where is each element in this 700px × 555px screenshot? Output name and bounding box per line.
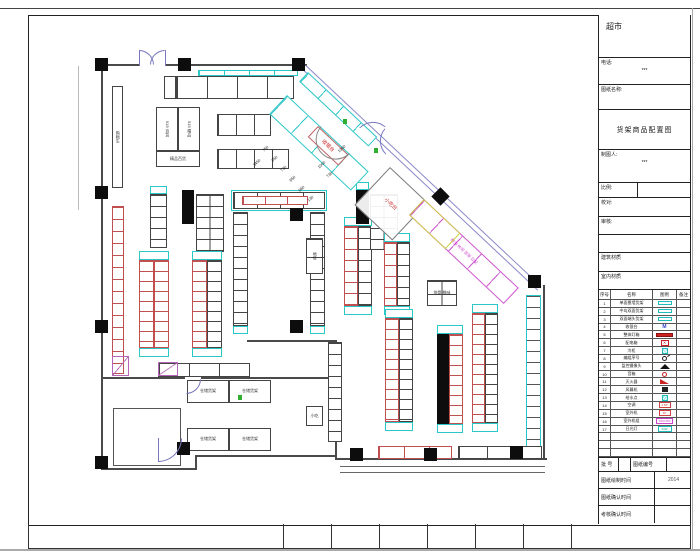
shelf-run	[344, 306, 372, 315]
legend-row-name: 冷柜	[611, 347, 653, 355]
structural-column	[350, 448, 363, 461]
draw-time-value: 2014	[655, 472, 690, 488]
shelf-run	[192, 251, 222, 260]
legend-row-no: 8	[599, 355, 611, 363]
draw-time-label: 图纸绘制时间	[599, 472, 655, 488]
shelf-label: 小吃	[307, 407, 322, 425]
blank-cell	[599, 235, 690, 253]
shelf-run: 精品百货	[156, 151, 200, 167]
legend-row-note	[677, 347, 690, 355]
sheet-bottom-edge	[0, 549, 700, 551]
interior-material-label: 室内材质	[601, 274, 621, 280]
legend-row-note	[677, 331, 690, 339]
structural-column	[528, 275, 541, 288]
legend-row-note	[677, 378, 690, 386]
draw-time-row: 图纸绘制时间 2014	[599, 472, 690, 489]
phone-label: 电话:	[601, 60, 612, 66]
legend-table: 序号名称图例备注1单面靠墙货架2中岛双面货架3双面端头货架4收银台M5整体灯箱6…	[599, 290, 690, 458]
hatch-triangle	[158, 362, 178, 376]
structural-column	[178, 58, 191, 71]
sheet-no-label: 图纸编号	[631, 458, 667, 471]
shelf-run: 915 百货	[156, 107, 178, 151]
shelf-run: 915 精品	[178, 107, 200, 151]
legend-row-symbol: ✕	[653, 339, 677, 347]
shelf-run	[233, 326, 248, 334]
legend-row-note	[677, 410, 690, 418]
structural-column	[290, 320, 303, 333]
wall-segment	[101, 468, 197, 470]
dimension-label: 1000	[316, 160, 326, 170]
magbox-icon: 700×450	[656, 418, 673, 424]
strip-divider	[427, 524, 428, 548]
shelf-run	[112, 206, 124, 374]
title-block: 超市 电话: *** 图纸名称: 货架商品配置图 制图人: *** 比例: 校对…	[598, 15, 690, 524]
legend-row-symbol: 40W	[653, 426, 677, 434]
review-cell: 审核:	[599, 217, 690, 235]
shelf-run	[198, 70, 298, 76]
shelf-run	[472, 304, 498, 313]
structural-column	[290, 208, 303, 221]
legend-row-symbol: 700×450	[653, 418, 677, 426]
revision-strip	[28, 524, 691, 549]
shelf-solid-bar	[437, 334, 449, 424]
door-arc	[150, 50, 165, 65]
legend-row-no: 6	[599, 339, 611, 347]
shelf-run	[458, 446, 542, 459]
batch-row: 批 号 图纸编号	[599, 458, 690, 472]
legend-row-name: 监控摄像头	[611, 363, 653, 371]
legend-row-name	[611, 433, 653, 441]
drafter-cell: 制图人: ***	[599, 150, 690, 183]
legend-row-symbol	[653, 316, 677, 324]
shelf-run: 排骨 腊味	[427, 280, 457, 306]
hatch-triangle	[112, 356, 129, 376]
legend-header: 备注	[677, 290, 690, 300]
check-cell: 校对:	[599, 198, 690, 217]
hatch-icon	[662, 395, 668, 401]
shelf-label: 仓储货架	[230, 381, 270, 402]
legend-row-note	[677, 363, 690, 371]
legend-row-symbol	[653, 331, 677, 339]
shelf-run	[526, 295, 541, 447]
wall-segment	[340, 472, 545, 473]
circle-icon	[662, 356, 667, 361]
shelf-run	[399, 318, 413, 422]
drafter-label: 制图人:	[601, 152, 617, 158]
legend-row-no: 5	[599, 331, 611, 339]
shelf-run: 仓储货架	[229, 428, 271, 451]
wall-segment	[247, 340, 337, 342]
drawing-sheet: 915 百货915 精品精品百货购物车排骨 腊味地堆小吃仓储货架仓储货架仓储货架…	[0, 0, 700, 555]
darksq-icon	[662, 387, 668, 392]
legend-row-no: 11	[599, 378, 611, 386]
phone-value: ***	[601, 68, 688, 74]
legend-row-name	[611, 449, 653, 457]
legend-row-note	[677, 308, 690, 316]
shelf-run: 仓储货架	[187, 428, 229, 451]
shelf-run	[139, 348, 169, 357]
legend-row-name: 日光灯	[611, 426, 653, 434]
legend-row-no: 1	[599, 300, 611, 308]
batch-value	[619, 458, 631, 471]
shelf-solid-bar	[182, 190, 194, 224]
legend-row-name: 中岛双面货架	[611, 308, 653, 316]
shelf-run	[385, 422, 413, 431]
floor-plan: 915 百货915 精品精品百货购物车排骨 腊味地堆小吃仓储货架仓储货架仓储货架…	[0, 0, 598, 524]
legend-row-no: 15	[599, 410, 611, 418]
shelf-run	[356, 182, 369, 190]
legend-row-name	[611, 441, 653, 449]
confirm-time-row: 图纸确认时间	[599, 489, 690, 506]
legend-row-symbol	[653, 347, 677, 355]
shelf-run	[139, 251, 169, 260]
legend-row-no	[599, 441, 611, 449]
shelf-run	[154, 260, 169, 348]
shelf-run	[472, 313, 485, 423]
redbar-icon	[656, 333, 673, 337]
wall-segment	[101, 377, 185, 379]
shelf-label: 地堆	[307, 239, 322, 273]
strip-divider	[475, 524, 476, 548]
drafter-value: ***	[601, 160, 688, 166]
structural-column	[95, 320, 108, 333]
drawing-name-label: 图纸名称:	[601, 87, 622, 93]
cyanbox-icon: 40W	[658, 426, 672, 432]
legend-row-no: 4	[599, 324, 611, 332]
shelf-run: 小吃	[306, 406, 323, 426]
legend-row-note	[677, 386, 690, 394]
shelf-run	[310, 326, 325, 334]
legend-row-no: 7	[599, 347, 611, 355]
redx-icon: ✕	[661, 340, 669, 346]
structural-column	[510, 446, 523, 459]
strip-divider	[379, 524, 380, 548]
strip-divider	[571, 524, 572, 548]
green-mark	[374, 148, 378, 153]
shelf-run	[385, 318, 399, 422]
legend-row-symbol	[653, 355, 677, 363]
ring-icon	[662, 372, 667, 377]
green-mark	[343, 119, 347, 124]
shelf-run	[384, 242, 397, 306]
drawing-name-cell: 货架商品配置图	[599, 110, 690, 150]
legend-row-no	[599, 449, 611, 457]
shelf-run	[449, 334, 463, 424]
legend-row-name: 风幕机	[611, 386, 653, 394]
legend-header: 序号	[599, 290, 611, 300]
dimension-label: 650	[288, 174, 296, 182]
legend-row-name: 室外机	[611, 410, 653, 418]
scale-divider	[637, 183, 638, 197]
cyanrect-icon	[658, 317, 672, 321]
legend-row-no: 16	[599, 418, 611, 426]
review-time-label: 考核确认时间	[599, 506, 655, 523]
cyanrect-icon	[658, 309, 672, 313]
legend-row-note	[677, 371, 690, 379]
wall-segment	[195, 455, 337, 457]
legend-row-name: 给水点	[611, 394, 653, 402]
shelf-label: 915 精品	[179, 108, 199, 150]
wall-segment	[195, 456, 197, 470]
phone-cell: 电话: ***	[599, 58, 690, 85]
legend-row-no: 3	[599, 316, 611, 324]
confirm-time-label: 图纸确认时间	[599, 489, 655, 505]
structural-column	[95, 58, 108, 71]
building-material-cell: 建筑材质	[599, 253, 690, 272]
wall-segment	[201, 377, 337, 379]
cyansq-icon	[662, 348, 668, 354]
sheet-right-edge	[692, 8, 693, 551]
shelf-run	[344, 226, 358, 306]
wall-segment	[78, 66, 79, 210]
legend-row-name: 配电箱	[611, 339, 653, 347]
scale-label: 比例:	[601, 185, 612, 191]
shelf-label: 仓储货架	[230, 429, 270, 450]
building-material-label: 建筑材质	[601, 255, 621, 261]
scale-cell: 比例:	[599, 183, 690, 198]
legend-row-name: 双面端头货架	[611, 316, 653, 324]
legend-row-symbol: M	[653, 324, 677, 332]
legend-row-no	[599, 433, 611, 441]
redbox-icon: 1.5P	[659, 402, 671, 408]
legend-row-symbol	[653, 363, 677, 371]
legend-row-name: 编组序号	[611, 355, 653, 363]
sheet-title-cell: 超市	[599, 15, 690, 58]
legend-row-name: 空调	[611, 402, 653, 410]
wedge-icon	[660, 379, 669, 384]
strip-divider	[523, 524, 524, 548]
legend-row-name: 整体灯箱	[611, 331, 653, 339]
shelf-run	[328, 342, 342, 442]
legend-row-note	[677, 449, 690, 457]
shelf-run	[472, 423, 498, 432]
legend-row-symbol	[653, 308, 677, 316]
review-label: 审核:	[601, 219, 612, 225]
legend-row-no: 17	[599, 426, 611, 434]
legend-row-no: 9	[599, 363, 611, 371]
interior-material-cell: 室内材质	[599, 272, 690, 290]
shelf-run: 地堆	[306, 238, 323, 274]
legend-row-symbol	[653, 441, 677, 449]
legend-row-no: 12	[599, 386, 611, 394]
legend-row-no: 2	[599, 308, 611, 316]
structural-column	[292, 58, 305, 71]
shelf-run	[207, 260, 222, 348]
confirm-time-value	[655, 489, 690, 505]
wall-segment	[101, 64, 103, 470]
shelf-run	[192, 348, 222, 357]
shelf-run	[150, 186, 167, 194]
shelf-run	[437, 424, 463, 433]
structural-column	[95, 456, 108, 469]
shelf-label: 排骨 腊味	[428, 281, 456, 305]
green-mark	[238, 395, 242, 400]
legend-row-symbol	[653, 378, 677, 386]
review-time-value	[655, 506, 690, 523]
legend-row-note	[677, 316, 690, 324]
structural-column	[95, 186, 108, 199]
dimension-label: 730	[325, 170, 333, 178]
legend-row-symbol	[653, 300, 677, 308]
legend-row-no: 13	[599, 394, 611, 402]
shelf-label: 精品百货	[157, 152, 199, 166]
sheet-no-value	[667, 458, 690, 471]
wall-segment	[165, 50, 166, 66]
shelf-run	[139, 260, 154, 348]
legend-row-symbol	[653, 371, 677, 379]
shelf-run	[233, 212, 248, 326]
wall-segment	[543, 285, 545, 460]
legend-row-note	[677, 426, 690, 434]
legend-row-note	[677, 355, 690, 363]
legend-row-note	[677, 394, 690, 402]
strip-divider	[283, 524, 284, 548]
redbox-icon: 2P	[659, 410, 671, 416]
legend-row-name: 单面靠墙货架	[611, 300, 653, 308]
shelf-run	[150, 194, 167, 248]
legend-header: 名称	[611, 290, 653, 300]
shelf-run	[196, 194, 224, 252]
shelf-label: 购物车	[113, 87, 122, 187]
legend-row-no: 10	[599, 371, 611, 379]
shelf-run	[242, 196, 308, 205]
shelf-run	[378, 446, 452, 459]
legend-row-no: 14	[599, 402, 611, 410]
shelf-run	[397, 242, 410, 306]
shelf-label: 915 百货	[157, 108, 177, 150]
legend-row-note	[677, 300, 690, 308]
shelf-run: 购物车	[112, 86, 123, 188]
legend-row-symbol: 2P	[653, 410, 677, 418]
shelf-run: 仓储货架	[229, 380, 271, 403]
shelf-run	[176, 76, 294, 99]
legend-row-name: 音箱	[611, 371, 653, 379]
legend-row-note	[677, 402, 690, 410]
legend-row-note	[677, 418, 690, 426]
legend-row-note	[677, 339, 690, 347]
legend-row-symbol: 1.5P	[653, 402, 677, 410]
legend-row-symbol	[653, 433, 677, 441]
legend-row-symbol	[653, 394, 677, 402]
legend-row-note	[677, 433, 690, 441]
review-time-row: 考核确认时间	[599, 506, 690, 523]
shelf-run	[217, 114, 271, 136]
legend-row-symbol	[653, 386, 677, 394]
legend-row-name: 灭火器	[611, 378, 653, 386]
shelf-run	[192, 260, 207, 348]
legend-row-name: 室外机组	[611, 418, 653, 426]
structural-column	[424, 448, 437, 461]
shelf-run	[385, 309, 413, 318]
sheet-title: 超市	[606, 22, 622, 31]
wall-segment	[340, 466, 545, 467]
shelf-run	[164, 76, 176, 99]
shelf-run	[437, 325, 463, 334]
legend-row-note	[677, 441, 690, 449]
strip-divider	[331, 524, 332, 548]
shelf-run	[485, 313, 498, 423]
cyanrect-icon	[658, 301, 672, 305]
batch-label: 批 号	[599, 458, 619, 471]
check-label: 校对:	[601, 200, 612, 206]
legend-row-name: 收银台	[611, 324, 653, 332]
mtext-icon: M	[662, 324, 666, 330]
legend-header: 图例	[653, 290, 677, 300]
trap-icon	[660, 364, 670, 369]
shelf-label: 仓储货架	[188, 429, 228, 450]
legend-row-note	[677, 324, 690, 332]
legend-row-symbol	[653, 449, 677, 457]
drawing-name: 货架商品配置图	[617, 125, 673, 135]
drawing-name-label-cell: 图纸名称:	[599, 85, 690, 110]
